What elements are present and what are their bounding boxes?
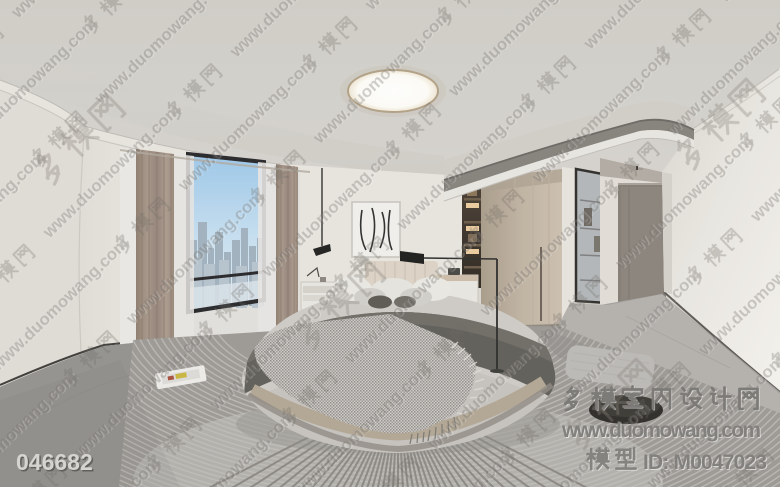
svg-text:www.duomowang.com: www.duomowang.com [561,419,761,442]
svg-text:046682: 046682 [16,449,93,475]
svg-text:ID: M0047023: ID: M0047023 [643,451,767,474]
